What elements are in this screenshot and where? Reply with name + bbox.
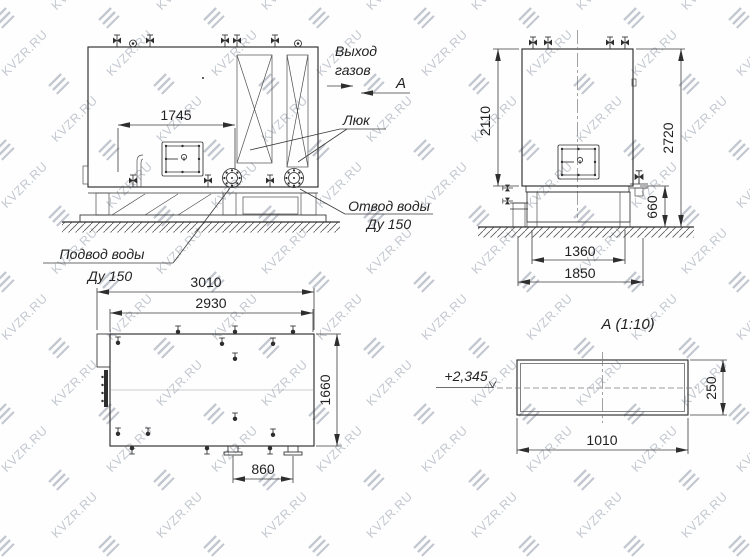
kvzr-logo-icon xyxy=(98,535,121,558)
dim-nozzle-spacing: 860 xyxy=(251,461,275,477)
water-outlet-line2: Ду 150 xyxy=(365,216,411,232)
dim-1745: 1745 xyxy=(118,107,235,172)
kvzr-logo-icon xyxy=(728,535,750,558)
dim-860: 860 xyxy=(233,456,293,483)
gas-outlet-line2: газов xyxy=(335,62,371,78)
section-arrow-letter: А xyxy=(395,75,406,92)
dim-length-body: 2930 xyxy=(195,295,226,311)
water-inlet-label: Подвод воды Ду 150 xyxy=(43,188,230,284)
gas-outlet-line1: Выход xyxy=(335,43,377,59)
front-door xyxy=(162,142,203,176)
lifting-lug-icon xyxy=(130,40,302,47)
kvzr-logo-icon xyxy=(308,535,331,558)
bent-pipe xyxy=(137,155,143,187)
dim-2110: 2110 xyxy=(477,49,519,186)
dim-section-width: 1010 xyxy=(586,432,617,448)
level-mark: +2,345 xyxy=(436,368,496,388)
water-outlet-line1: Отвод воды xyxy=(348,198,430,214)
hatch-panels xyxy=(237,55,308,167)
side-fitting xyxy=(83,166,88,184)
dim-total-height: 2720 xyxy=(660,122,676,153)
water-inlet-line2: Ду 150 xyxy=(86,268,132,284)
plan-view: 3010 2930 1660 860 xyxy=(97,274,341,483)
dim-plan-width: 1660 xyxy=(317,374,333,405)
kvzr-logo-icon xyxy=(203,535,226,558)
level-check-icon xyxy=(489,382,496,388)
gas-outlet-label: Выход газов xyxy=(327,43,377,86)
dim-section-height: 250 xyxy=(703,376,719,400)
inlet-pipe-assembly xyxy=(503,185,528,227)
level-value: +2,345 xyxy=(444,368,487,384)
dim-1010: 1010 xyxy=(517,418,688,454)
nozzle-stubs xyxy=(224,446,302,455)
kvzr-logo-icon xyxy=(518,535,541,558)
front-view: 1745 Выход газов А Люк Отвод воды Ду 150 xyxy=(43,35,433,284)
ground-hatch xyxy=(62,223,340,233)
dim-frame-width: 1360 xyxy=(564,243,595,259)
dim-base-width: 1850 xyxy=(564,265,595,281)
technical-drawing: 1745 Выход газов А Люк Отвод воды Ду 150 xyxy=(0,0,750,500)
ground-hatch xyxy=(478,228,694,238)
water-inlet-line1: Подвод воды xyxy=(60,246,146,262)
kvzr-logo-icon xyxy=(623,535,646,558)
dim-660: 660 xyxy=(640,186,669,227)
section-title: А (1:10) xyxy=(600,316,654,333)
ladder xyxy=(104,370,108,407)
dim-body-height: 2110 xyxy=(477,106,493,136)
side-view: 2110 2720 660 1360 1850 xyxy=(477,30,694,286)
kvzr-logo-icon xyxy=(413,535,436,558)
dim-250: 250 xyxy=(690,360,727,415)
water-outlet-flange xyxy=(285,169,304,188)
water-inlet-flange xyxy=(223,169,242,188)
hatch-text: Люк xyxy=(342,112,371,128)
kvzr-logo-icon xyxy=(0,535,16,558)
valve-icons-top xyxy=(113,35,279,47)
dim-2930: 2930 xyxy=(110,295,313,332)
support-frame xyxy=(80,193,326,222)
dim-1660: 1660 xyxy=(316,334,341,446)
dim-length-overall: 3010 xyxy=(190,274,221,290)
dim-front-width: 1745 xyxy=(160,107,191,123)
base-frame xyxy=(526,186,630,227)
section-a-view: А (1:10) +2,345 250 1010 xyxy=(436,316,727,454)
dim-frame-height: 660 xyxy=(644,195,660,219)
side-door xyxy=(558,145,599,179)
